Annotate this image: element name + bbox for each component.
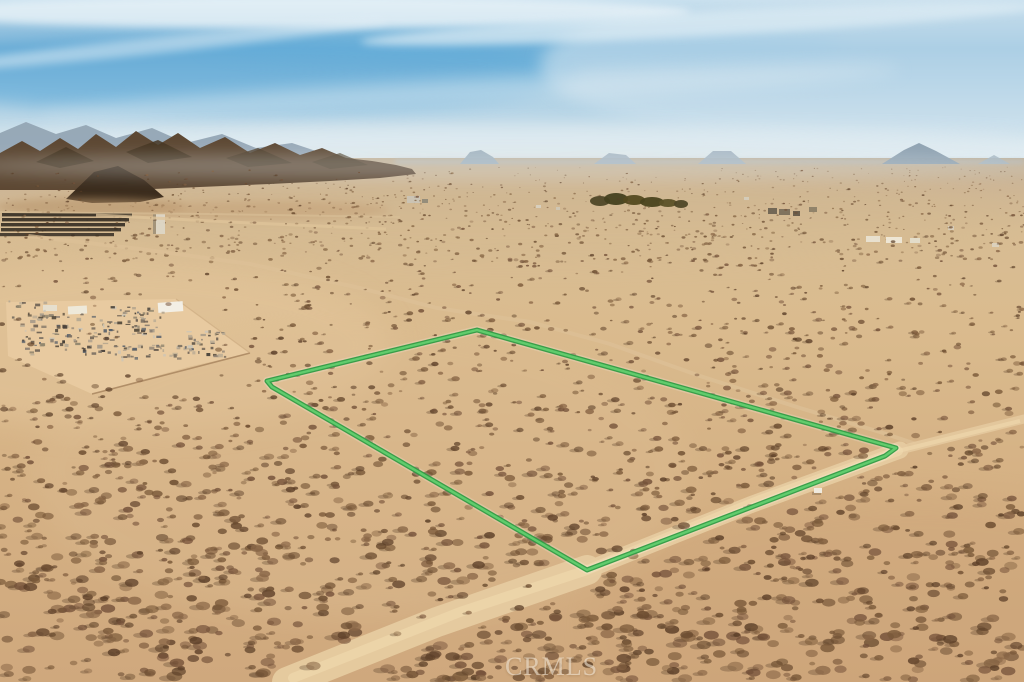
aerial-photo-desert-parcel: CRMLS [0, 0, 1024, 682]
scene-svg [0, 0, 1024, 682]
